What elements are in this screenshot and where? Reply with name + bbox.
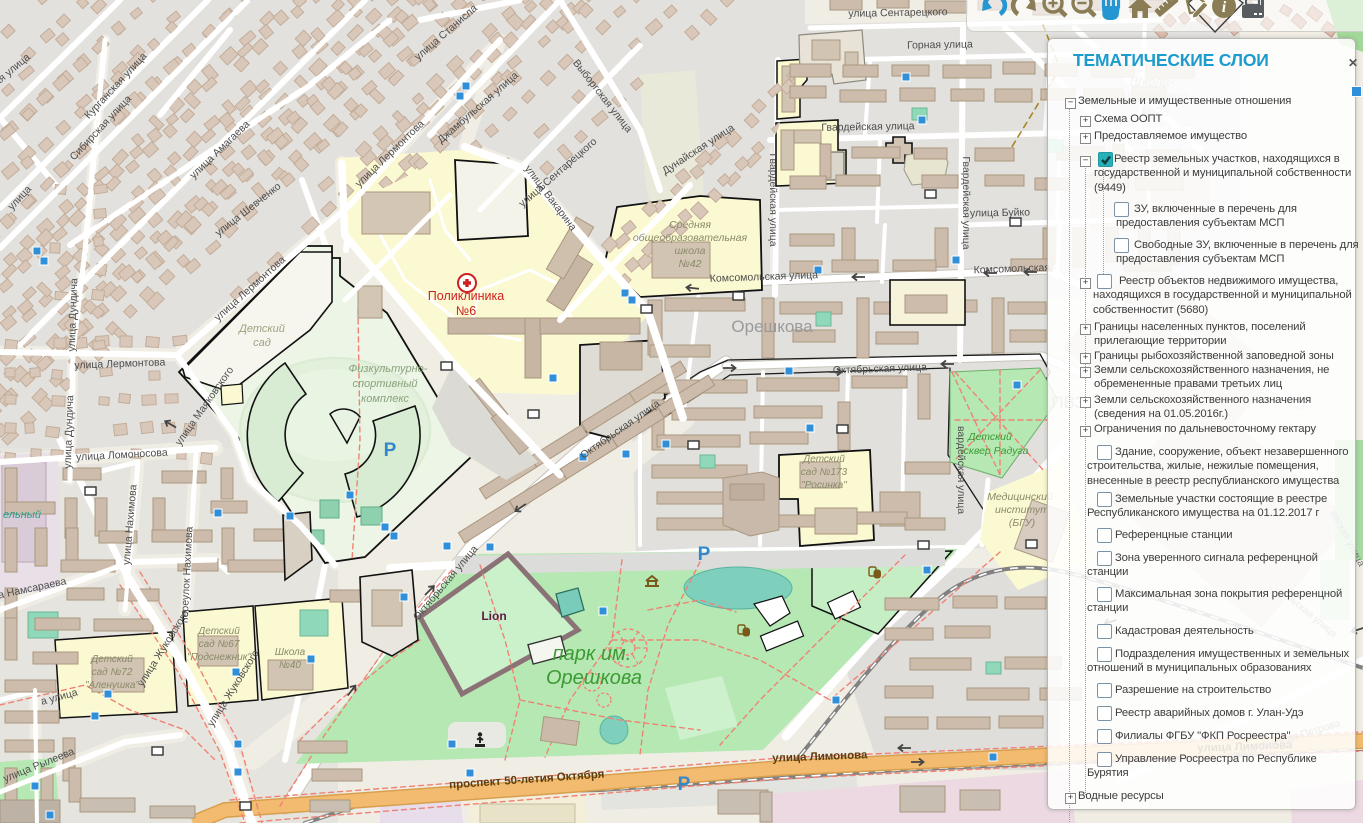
svg-text:ельный: ельный <box>3 509 41 521</box>
svg-text:P: P <box>384 440 397 461</box>
svg-text:(БГУ): (БГУ) <box>1009 517 1035 529</box>
svg-text:"Аленушка": "Аленушка" <box>85 680 140 691</box>
svg-text:вардейская улица: вардейская улица <box>955 426 967 514</box>
svg-text:Горная улица: Горная улица <box>907 38 973 51</box>
svg-text:i: i <box>1222 0 1227 16</box>
svg-text:Медицинский: Медицинский <box>987 491 1053 503</box>
svg-text:Детский: Детский <box>197 626 240 637</box>
svg-text:"Подснежник": "Подснежник" <box>187 652 252 663</box>
svg-text:улица Буйко: улица Буйко <box>970 206 1030 219</box>
svg-text:сад №67: сад №67 <box>199 639 240 650</box>
svg-text:Орешкова: Орешкова <box>546 667 642 689</box>
svg-text:Средняя: Средняя <box>669 219 711 231</box>
svg-text:P: P <box>678 774 691 795</box>
svg-text:Детский: Детский <box>237 323 285 335</box>
svg-text:комплекс: комплекс <box>361 393 409 405</box>
svg-text:Детский: Детский <box>802 454 845 465</box>
svg-text:улица Сентарецкого: улица Сентарецкого <box>848 6 948 20</box>
svg-text:улица Дундича: улица Дундича <box>62 395 77 469</box>
svg-text:Поликлиника: Поликлиника <box>428 289 504 303</box>
svg-text:институт: институт <box>995 504 1049 516</box>
svg-text:улица Дундича: улица Дундича <box>66 278 81 352</box>
svg-text:"Росинка": "Росинка" <box>801 480 847 491</box>
svg-text:Школа: Школа <box>275 647 306 658</box>
svg-text:сад №173: сад №173 <box>801 467 848 478</box>
svg-text:Lion: Lion <box>481 609 506 623</box>
svg-text:общеобразовательная: общеобразовательная <box>633 232 748 244</box>
svg-text:спортивный: спортивный <box>352 378 417 390</box>
svg-text:сад: сад <box>253 337 271 349</box>
svg-text:сквер Радуга: сквер Радуга <box>964 445 1029 457</box>
svg-text:Детский: Детский <box>967 431 1012 443</box>
svg-text:P: P <box>698 544 711 565</box>
svg-text:Гвардейская улица: Гвардейская улица <box>767 153 779 246</box>
svg-text:сад №72: сад №72 <box>92 667 133 678</box>
svg-text:№40: №40 <box>279 660 301 671</box>
svg-text:№6: №6 <box>456 304 476 318</box>
svg-text:школа: школа <box>674 245 705 257</box>
svg-text:Гвардейская улица: Гвардейская улица <box>960 156 972 249</box>
svg-text:№42: №42 <box>678 258 701 270</box>
svg-text:Физкультурно-: Физкультурно- <box>349 363 428 375</box>
svg-text:Гвардейская улица: Гвардейская улица <box>821 120 915 134</box>
svg-text:Орешкова: Орешкова <box>731 317 813 336</box>
svg-text:парк им.: парк им. <box>553 643 632 665</box>
svg-text:Детский: Детский <box>90 654 133 665</box>
